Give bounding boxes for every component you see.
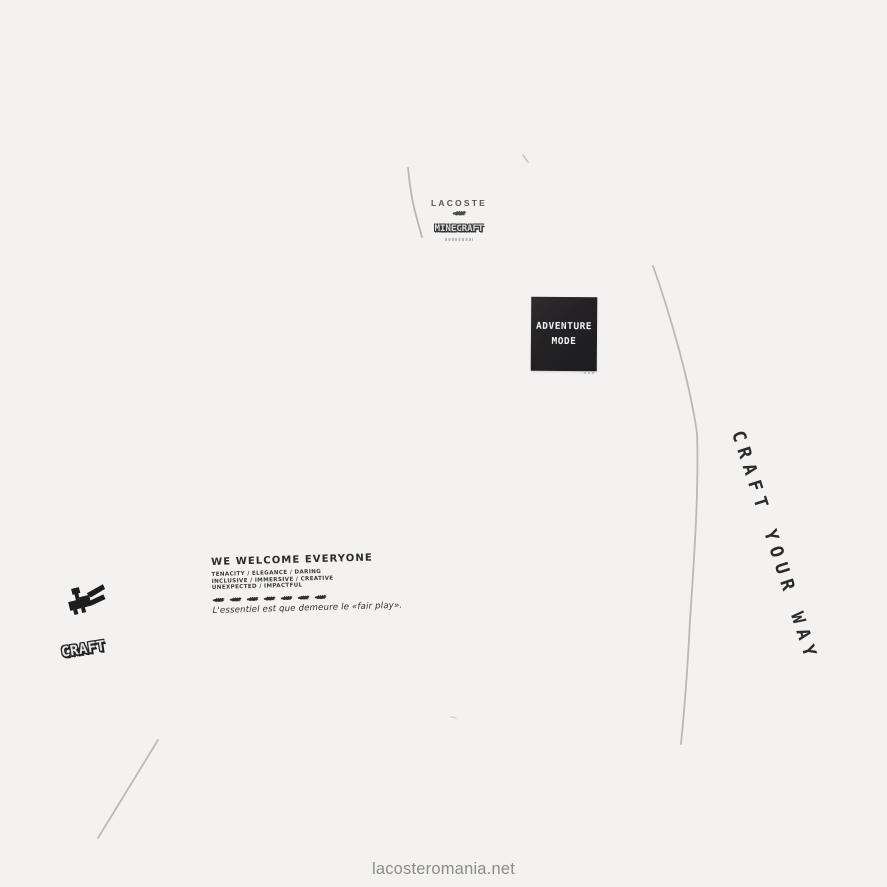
seam-top-left [408,168,422,237]
crocodile-icon [212,595,225,602]
chest-value-lines: TENACITY / ELEGANCE / DARING INCLUSIVE /… [211,568,371,592]
fabric-seam-lines [0,0,887,887]
adventure-mode-patch: ADVENTURE MODE [531,297,598,371]
crocodile-icon [314,593,327,600]
crocodile-icon [229,595,242,602]
seam-bottom-left [98,740,158,838]
crocodile-icon [263,594,276,601]
crocodile-icon [452,209,467,216]
logo-fine-print [445,238,473,241]
patch-line-1: ADVENTURE [536,319,592,334]
tick-top-right [523,155,528,162]
chest-print-block: WE WELCOME EVERYONE TENACITY / ELEGANCE … [211,553,373,616]
brand-logo-block: LACOSTE MINECRAFT [429,198,489,241]
minecraft-wordmark: MINECRAFT [435,224,484,234]
crocodile-icon [280,594,293,601]
tick-center-bottom [451,717,456,718]
crocodile-icon [297,593,310,600]
patch-stitch-mark [584,372,596,374]
lacoste-wordmark: LACOSTE [429,198,489,208]
garment-flatlay-photo: LACOSTE MINECRAFT ADVENTURE MODE CRAFT Y… [0,0,887,887]
seam-right [653,266,697,744]
patch-line-2: MODE [551,334,576,349]
watermark-text: lacosteromania.net [372,860,515,879]
crocodile-icon [246,594,259,601]
